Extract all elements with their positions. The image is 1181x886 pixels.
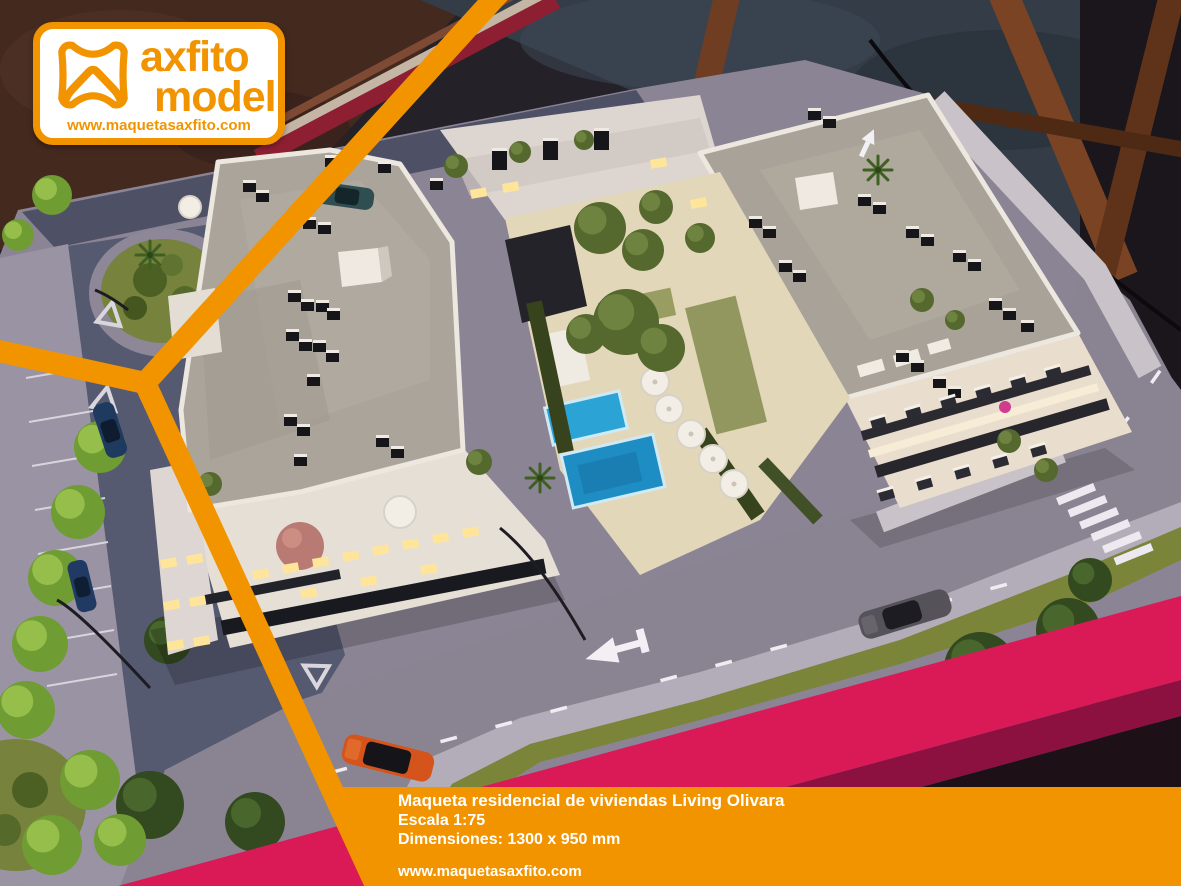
promo-image: axfito model www.maquetasaxfito.com Maqu… (0, 0, 1181, 886)
brand-website: www.maquetasaxfito.com (40, 117, 278, 134)
caption-dimensions: Dimensiones: 1300 x 950 mm (398, 830, 784, 849)
terrace-umbrella (179, 196, 201, 218)
brand-logo: axfito model www.maquetasaxfito.com (33, 22, 285, 145)
caption-title: Maqueta residencial de viviendas Living … (398, 790, 784, 811)
axfito-logo-mark-icon (50, 35, 136, 115)
caption-text: Maqueta residencial de viviendas Living … (398, 790, 784, 880)
caption-scale: Escala 1:75 (398, 811, 784, 830)
patio-umbrella (384, 496, 416, 528)
brand-name-line1: axfito (140, 37, 276, 77)
pink-flower-pot (999, 401, 1011, 413)
brand-name-line2: model (154, 77, 276, 117)
caption-website: www.maquetasaxfito.com (398, 863, 784, 880)
